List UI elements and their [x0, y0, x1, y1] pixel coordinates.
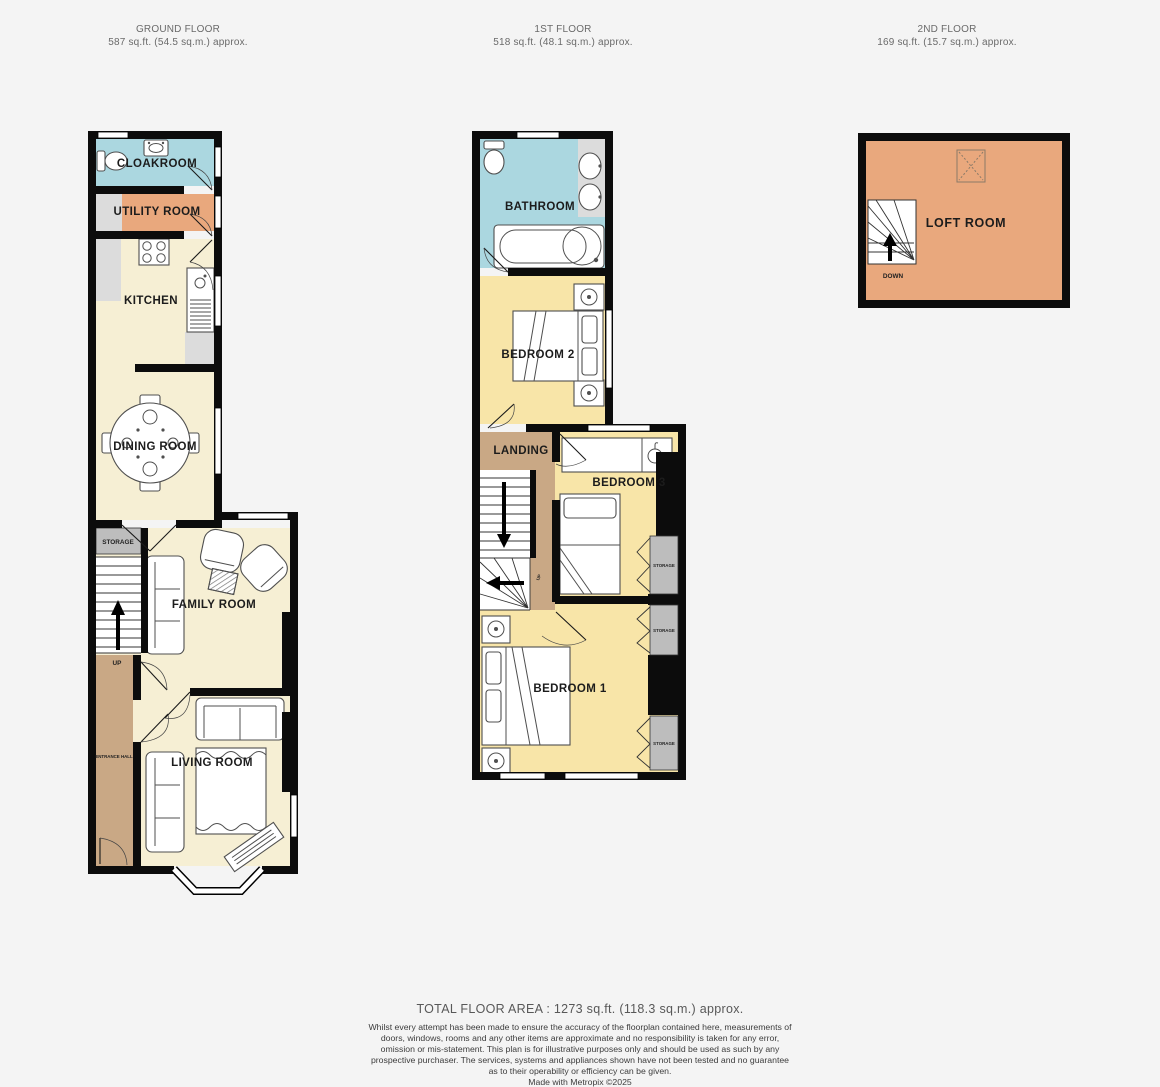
second-floor-plan: LOFT ROOM DOWN [853, 128, 1075, 313]
kitchen-counter-right [185, 332, 214, 364]
label-bedroom3: BEDROOM 3 [592, 477, 665, 489]
sink-icon [579, 153, 602, 179]
label-bedroom1: BEDROOM 1 [533, 683, 606, 695]
stove-icon [139, 239, 169, 265]
second-floor-area: 169 sq.ft. (15.7 sq.m.) approx. [832, 37, 1062, 50]
ground-floor-area: 587 sq.ft. (54.5 sq.m.) approx. [63, 37, 293, 50]
label-utility-room: UTILITY ROOM [113, 206, 200, 218]
label-dining-room: DINING ROOM [113, 441, 197, 453]
sink-icon [144, 140, 168, 156]
label-storage-3: STORAGE [653, 741, 675, 746]
label-down: DOWN [883, 273, 904, 280]
disclaimer-text: Whilst every attempt has been made to en… [368, 1022, 792, 1076]
label-up: UP [113, 660, 123, 667]
wardrobe-icon [562, 438, 672, 472]
bay-window [174, 869, 262, 891]
sofa-icon [196, 698, 284, 740]
bed-icon [560, 494, 620, 594]
floorplan-page: GROUND FLOOR 587 sq.ft. (54.5 sq.m.) app… [0, 0, 1160, 1080]
bed-icon [482, 647, 570, 745]
sink-icon [579, 184, 602, 210]
nightstand-icon [482, 616, 510, 643]
second-floor-title: 2ND FLOOR [832, 24, 1062, 37]
credit-text: Made with Metropix ©2025 [368, 1077, 792, 1087]
bath-icon [494, 225, 604, 268]
label-cloakroom: CLOAKROOM [117, 158, 197, 170]
first-floor-plan: BATHROOM BEDROOM 2 LANDING BEDROOM 3 BED… [465, 125, 695, 785]
toilet-icon [484, 141, 504, 174]
label-bathroom: BATHROOM [505, 201, 575, 213]
label-loft-room: LOFT ROOM [926, 216, 1006, 230]
nightstand-icon [574, 380, 604, 406]
stairs-loft-icon [868, 200, 916, 264]
label-living-room: LIVING ROOM [171, 757, 253, 769]
first-floor-area: 518 sq.ft. (48.1 sq.m.) approx. [448, 37, 678, 50]
first-floor-header: 1ST FLOOR 518 sq.ft. (48.1 sq.m.) approx… [448, 24, 678, 49]
ground-floor-title: GROUND FLOOR [63, 24, 293, 37]
label-kitchen: KITCHEN [124, 295, 178, 307]
total-floor-area: TOTAL FLOOR AREA : 1273 sq.ft. (118.3 sq… [368, 1002, 792, 1016]
label-entrance-hall: ENTRANCE HALL [95, 754, 133, 759]
label-landing: LANDING [493, 445, 548, 457]
label-family-room: FAMILY ROOM [172, 599, 256, 611]
bed-icon [513, 311, 603, 381]
second-floor-header: 2ND FLOOR 169 sq.ft. (15.7 sq.m.) approx… [832, 24, 1062, 49]
nightstand-icon [574, 284, 604, 310]
label-storage: STORAGE [102, 539, 134, 546]
kitchen-counter-left [96, 239, 121, 301]
nightstand-icon [482, 748, 510, 775]
first-floor-title: 1ST FLOOR [448, 24, 678, 37]
label-storage-2: STORAGE [653, 628, 675, 633]
label-bedroom2: BEDROOM 2 [501, 349, 574, 361]
footer: TOTAL FLOOR AREA : 1273 sq.ft. (118.3 sq… [368, 1002, 792, 1087]
ground-floor-plan: CLOAKROOM UTILITY ROOM KITCHEN DINING RO… [85, 125, 315, 900]
ground-floor-header: GROUND FLOOR 587 sq.ft. (54.5 sq.m.) app… [63, 24, 293, 49]
label-storage-1: STORAGE [653, 563, 675, 568]
room-entrance-hall [96, 655, 133, 866]
